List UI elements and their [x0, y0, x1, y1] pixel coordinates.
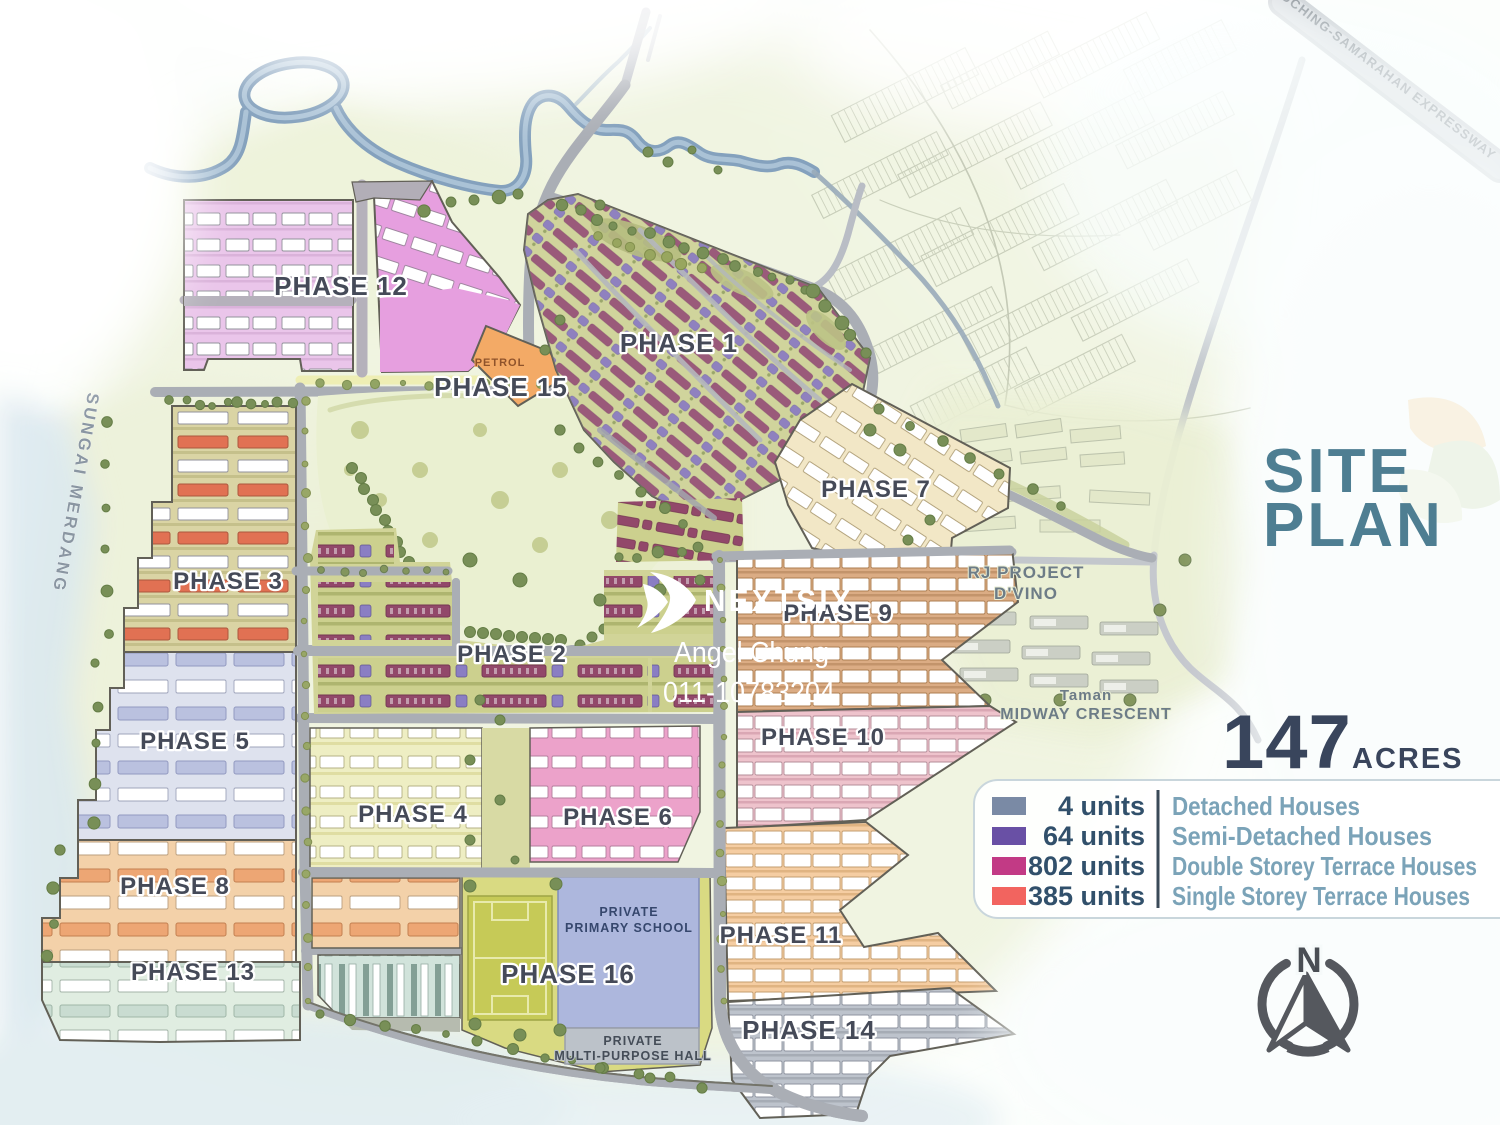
svg-text:Double Storey Terrace Houses: Double Storey Terrace Houses [1172, 851, 1477, 881]
svg-text:802 units: 802 units [1028, 851, 1145, 881]
svg-text:ACRES: ACRES [1352, 743, 1464, 775]
svg-text:N: N [1296, 941, 1321, 980]
svg-text:64 units: 64 units [1043, 821, 1145, 851]
svg-text:4 units: 4 units [1058, 791, 1145, 821]
svg-text:Detached Houses: Detached Houses [1172, 791, 1360, 821]
svg-text:Angel Chung: Angel Chung [674, 637, 829, 669]
svg-text:Semi-Detached Houses: Semi-Detached Houses [1172, 821, 1432, 851]
svg-text:011-10783204: 011-10783204 [663, 677, 835, 709]
svg-text:NEXTSIX: NEXTSIX [704, 583, 854, 618]
svg-text:Single Storey Terrace Houses: Single Storey Terrace Houses [1172, 881, 1470, 911]
svg-text:147: 147 [1222, 700, 1352, 785]
svg-text:PLAN: PLAN [1263, 491, 1444, 560]
svg-text:385 units: 385 units [1028, 881, 1145, 911]
